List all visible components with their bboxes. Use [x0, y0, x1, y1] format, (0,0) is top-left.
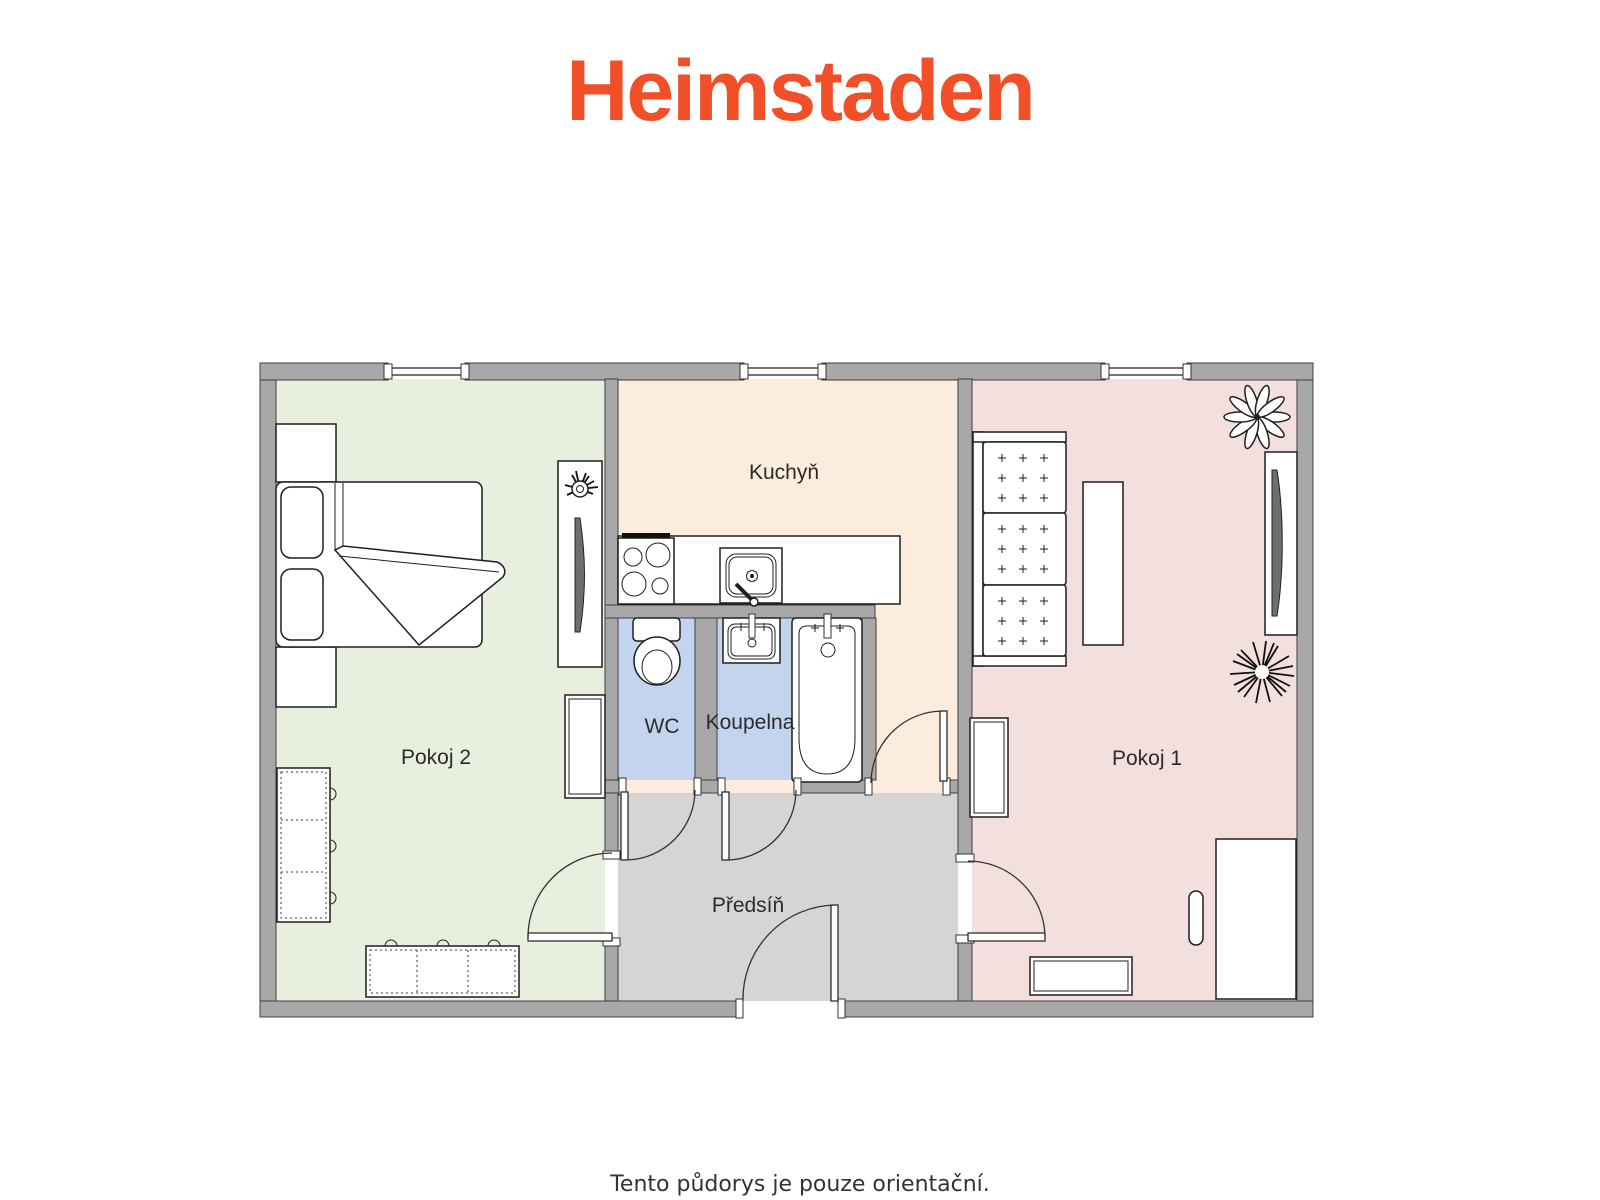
- label-wc: WC: [645, 715, 680, 738]
- wardrobe: [277, 768, 336, 922]
- wall-top-seg1: [260, 363, 388, 380]
- wall-left: [260, 363, 276, 1017]
- label-pokoj2: Pokoj 2: [401, 746, 471, 769]
- bathroom-sink: [723, 614, 780, 663]
- wall-right: [1297, 363, 1313, 1017]
- floor-plan: Pokoj 2 Kuchyň Pokoj 1 WC Koupelna Předs…: [0, 0, 1600, 1200]
- tv-cabinet-pokoj2: [558, 461, 602, 667]
- toilet: [633, 618, 680, 685]
- pillow-1: [281, 487, 323, 558]
- label-predsin: Předsíň: [712, 894, 784, 917]
- stove: [618, 533, 674, 604]
- sofa: [973, 432, 1066, 666]
- label-koupelna: Koupelna: [706, 711, 795, 734]
- wall-top-seg3: [822, 363, 1105, 380]
- wall-top-seg2: [465, 363, 744, 380]
- desk: [1216, 839, 1296, 999]
- radiator-pokoj2: [565, 695, 605, 798]
- page: Heimstaden: [0, 0, 1600, 1200]
- wall-bottom-seg1: [260, 1001, 743, 1017]
- tv-cabinet-pokoj1: [1265, 452, 1297, 635]
- low-cabinet-pokoj1: [1030, 957, 1132, 995]
- window-pokoj1: [1101, 364, 1191, 379]
- wall-bath-right: [862, 618, 876, 780]
- wall-pokoj1-lower: [958, 937, 972, 1001]
- pillow-2: [281, 569, 323, 640]
- dresser: [366, 940, 519, 997]
- label-kuchyn: Kuchyň: [749, 461, 819, 484]
- coffee-table: [1083, 482, 1123, 645]
- bathtub: [792, 614, 862, 782]
- label-pokoj1: Pokoj 1: [1112, 747, 1182, 770]
- cabinet-pokoj1: [970, 718, 1008, 817]
- kitchen-fixtures: [618, 533, 900, 606]
- window-kuchyn: [740, 364, 826, 379]
- bed: [276, 482, 505, 647]
- window-pokoj2: [384, 364, 469, 379]
- wall-bath-top: [605, 605, 875, 618]
- desk-chair: [1189, 891, 1203, 945]
- nightstand-bottom: [276, 647, 336, 707]
- nightstand-top: [276, 424, 336, 482]
- wall-wc-koupelna-divider: [695, 618, 717, 780]
- wall-pokoj2-lower: [605, 940, 618, 1001]
- disclaimer-note: Tento půdorys je pouze orientační.: [0, 1172, 1600, 1197]
- kitchen-sink: [720, 548, 782, 606]
- wall-top-seg4: [1187, 363, 1313, 380]
- wall-bottom-seg2: [838, 1001, 1313, 1017]
